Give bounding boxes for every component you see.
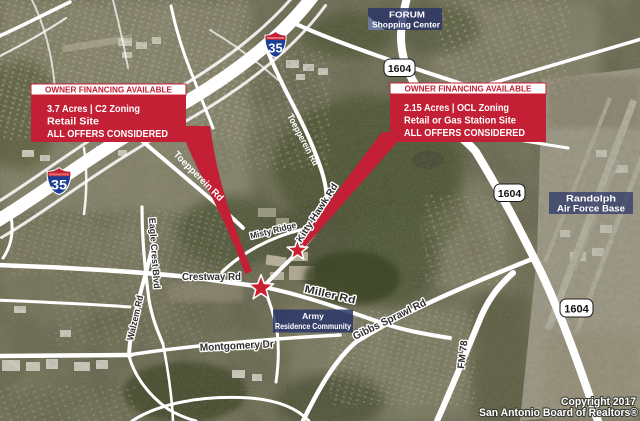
svg-text:FORUM: FORUM [389,10,425,20]
svg-text:INTERSTATE: INTERSTATE [49,172,69,176]
svg-text:Randolph: Randolph [566,194,616,204]
svg-text:1604: 1604 [388,63,412,75]
svg-text:Residence Community: Residence Community [275,321,351,331]
svg-text:OWNER FINANCING AVAILABLE: OWNER FINANCING AVAILABLE [405,84,532,94]
svg-text:1604: 1604 [498,188,522,200]
svg-text:1604: 1604 [564,304,589,316]
svg-text:OWNER FINANCING AVAILABLE: OWNER FINANCING AVAILABLE [45,85,172,95]
svg-text:ALL OFFERS CONSIDERED: ALL OFFERS CONSIDERED [47,129,168,140]
svg-text:Shopping Center: Shopping Center [372,20,441,30]
svg-text:San Antonio Board of Realtors®: San Antonio Board of Realtors® [479,407,638,419]
svg-text:INTERSTATE: INTERSTATE [267,36,285,40]
svg-text:Retail Site: Retail Site [47,117,99,128]
svg-text:35: 35 [51,177,67,192]
svg-text:3.7 Acres | C2 Zoning: 3.7 Acres | C2 Zoning [47,104,140,115]
svg-text:ALL OFFERS CONSIDERED: ALL OFFERS CONSIDERED [404,128,525,139]
svg-text:Army: Army [302,311,324,321]
svg-text:Crestway Rd: Crestway Rd [182,271,241,283]
svg-text:Retail or Gas Station Site: Retail or Gas Station Site [404,116,516,127]
svg-text:35: 35 [268,41,282,56]
svg-text:Air Force Base: Air Force Base [557,204,625,214]
svg-text:2.15 Acres | OCL Zoning: 2.15 Acres | OCL Zoning [404,103,509,114]
